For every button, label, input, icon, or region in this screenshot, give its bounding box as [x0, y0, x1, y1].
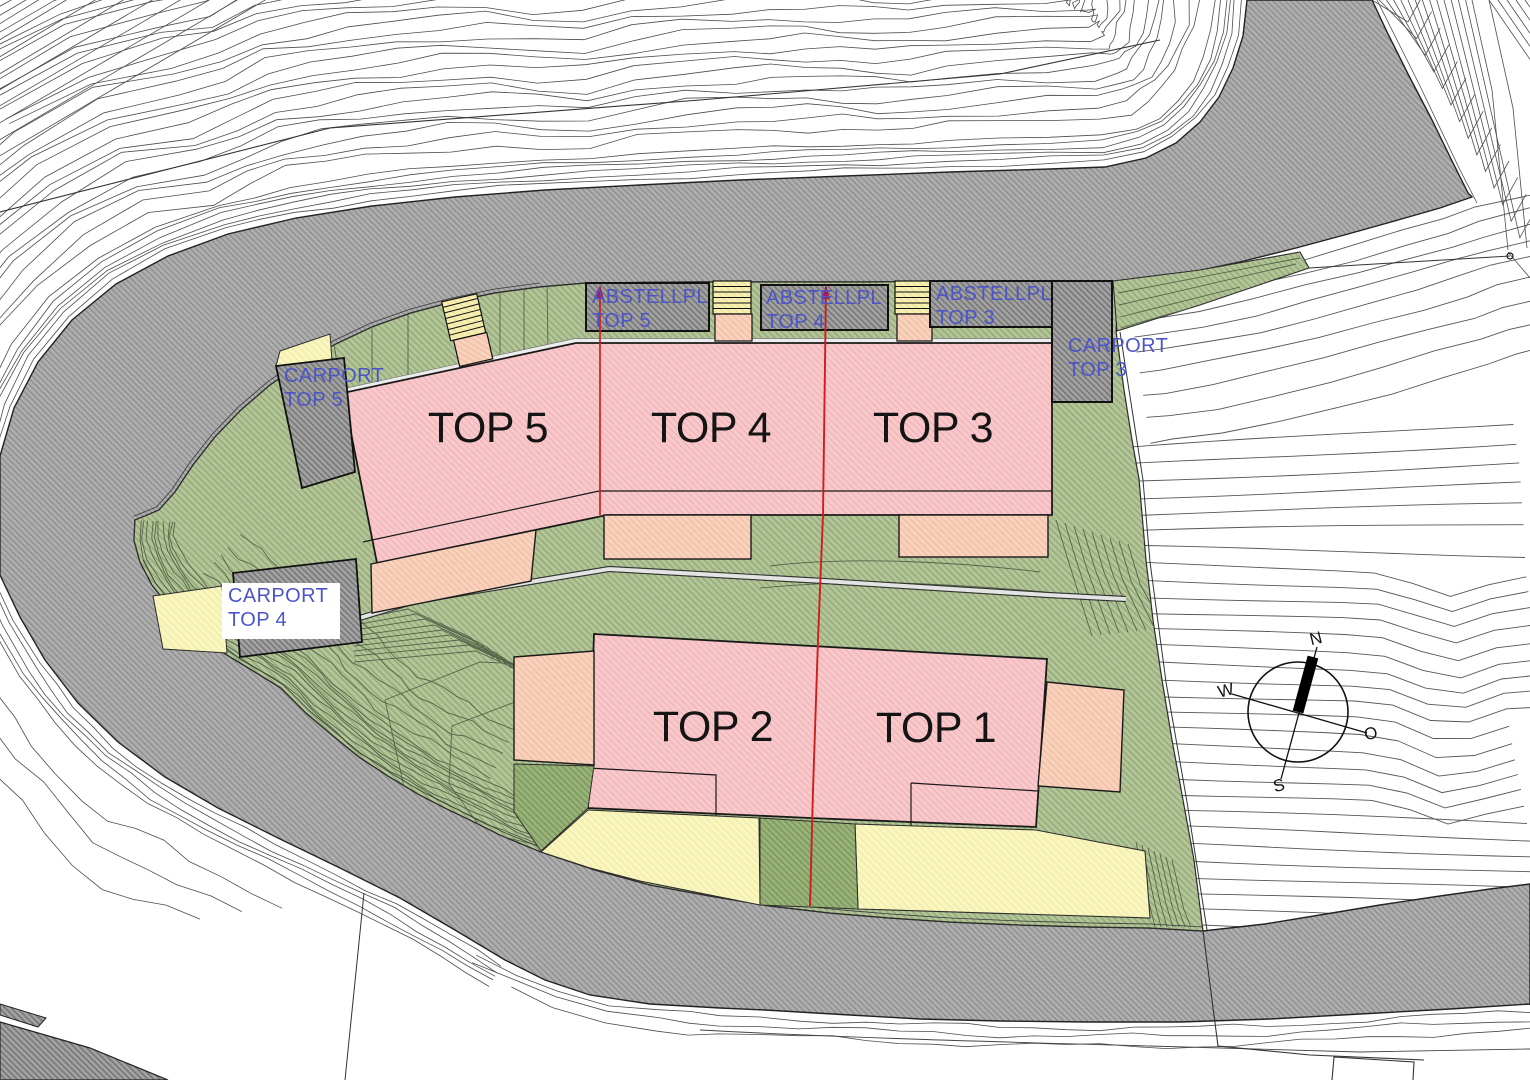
svg-text:ABSTELLPL: ABSTELLPL	[592, 286, 708, 308]
svg-text:TOP 3: TOP 3	[873, 404, 993, 452]
svg-text:S: S	[1271, 775, 1287, 796]
svg-text:CARPORT: CARPORT	[1068, 335, 1168, 357]
svg-text:TOP 5: TOP 5	[428, 404, 548, 452]
svg-text:ABSTELLPL: ABSTELLPL	[766, 287, 882, 309]
svg-text:TOP 4: TOP 4	[766, 311, 825, 333]
svg-text:TOP 4: TOP 4	[651, 404, 771, 452]
svg-text:TOP 5: TOP 5	[284, 389, 343, 411]
svg-text:N: N	[1308, 628, 1325, 649]
svg-text:O: O	[1362, 723, 1379, 745]
svg-text:TOP 5: TOP 5	[592, 310, 651, 332]
svg-text:TOP 3: TOP 3	[936, 307, 995, 329]
svg-text:TOP 1: TOP 1	[876, 704, 996, 752]
svg-text:CARPORT: CARPORT	[284, 365, 384, 387]
svg-text:ABSTELLPL: ABSTELLPL	[936, 283, 1052, 305]
svg-text:TOP 2: TOP 2	[653, 703, 773, 751]
svg-text:CARPORT: CARPORT	[228, 585, 328, 607]
svg-text:TOP 3: TOP 3	[1068, 359, 1127, 381]
svg-text:TOP 4: TOP 4	[228, 609, 287, 631]
